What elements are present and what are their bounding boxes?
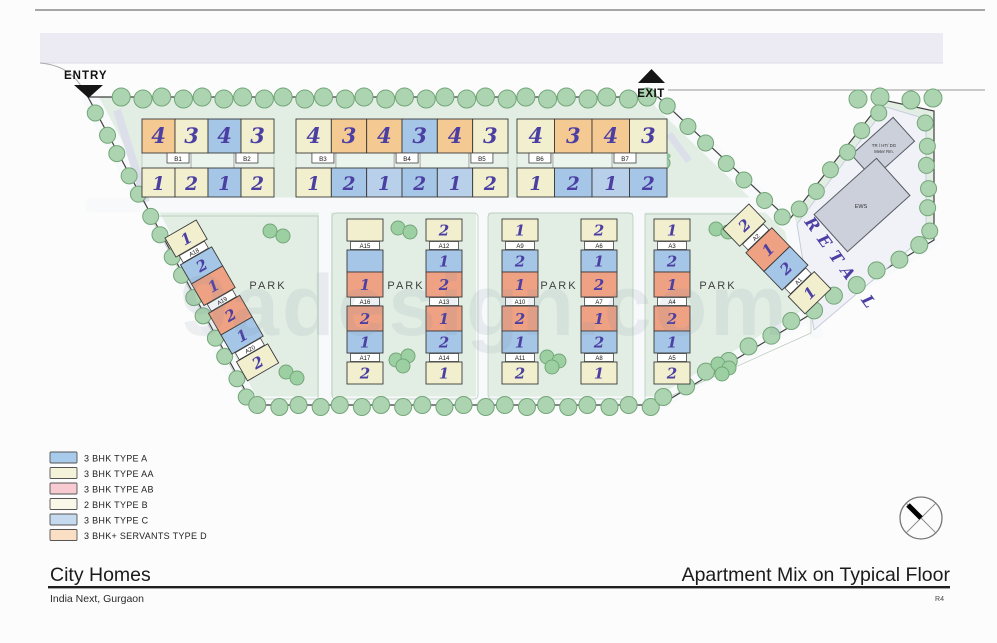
- unit-count-number: 4: [528, 123, 543, 148]
- tree-icon: [436, 399, 453, 416]
- tower-label: A11: [515, 356, 526, 362]
- tower-label: A3: [668, 244, 676, 250]
- meter-room-label-1: TR / HT/ DG: [872, 143, 897, 148]
- tower-label: A17: [360, 356, 371, 362]
- tree-icon: [276, 229, 290, 243]
- legend-swatch: [50, 452, 77, 463]
- tree-icon: [557, 88, 575, 106]
- tree-icon: [395, 399, 412, 416]
- legend-item: 3 BHK TYPE A: [50, 452, 147, 464]
- legend-swatch: [50, 499, 77, 510]
- legend-swatch: [50, 483, 77, 494]
- tree-icon: [396, 359, 410, 373]
- tree-icon: [868, 262, 885, 279]
- tree-icon: [395, 88, 413, 106]
- tree-icon: [271, 399, 288, 416]
- unit-count-number: 4: [603, 123, 618, 148]
- unit-count-number: 4: [377, 123, 392, 148]
- apartment-building-B1-B2: 43431212B1B2: [142, 119, 274, 197]
- tree-icon: [655, 389, 672, 406]
- unit-count-number: 4: [306, 123, 321, 148]
- legend-swatch: [50, 530, 77, 541]
- tree-icon: [911, 237, 928, 254]
- unit-count-number: 1: [307, 174, 320, 195]
- unit-count-number: 3: [184, 123, 199, 148]
- tree-icon: [919, 138, 935, 154]
- unit-count-number: 4: [217, 123, 232, 148]
- tree-icon: [403, 225, 417, 239]
- unit-count-number: 1: [439, 365, 449, 383]
- tree-icon: [121, 168, 137, 184]
- tree-icon: [153, 88, 171, 106]
- tree-icon: [458, 90, 476, 108]
- legend-label: 3 BHK TYPE AB: [84, 485, 154, 495]
- tree-icon: [848, 277, 865, 294]
- watermark: 9adesign.com: [180, 258, 790, 354]
- tower-label: A9: [516, 244, 524, 250]
- building-label: B1: [174, 156, 182, 163]
- tree-icon: [545, 360, 559, 374]
- tree-icon: [336, 90, 354, 108]
- apartment-building-B6-B7: 43431212B6B7: [517, 119, 667, 197]
- tree-icon: [921, 181, 937, 197]
- tree-icon: [315, 88, 333, 106]
- unit-count-number: 1: [152, 174, 165, 195]
- top-building-row: 43431212B1B2434343121212B3B4B543431212B6…: [142, 119, 667, 197]
- tree-icon: [373, 397, 390, 414]
- tree-icon: [255, 90, 273, 108]
- unit-count-number: 1: [594, 365, 604, 383]
- tree-icon: [87, 105, 103, 121]
- tree-icon: [331, 397, 348, 414]
- ews-label: EWS: [855, 204, 868, 210]
- unit-cell: [347, 219, 383, 241]
- tree-icon: [601, 399, 618, 416]
- tree-icon: [560, 399, 577, 416]
- tree-icon: [579, 90, 597, 108]
- tree-icon: [215, 90, 233, 108]
- unit-count-number: 2: [342, 174, 356, 195]
- exit-label: EXIT: [637, 88, 665, 100]
- tree-icon: [455, 397, 472, 414]
- tree-icon: [274, 88, 292, 106]
- tower-label: A5: [668, 356, 676, 362]
- unit-count-number: 2: [641, 174, 655, 195]
- tree-icon: [518, 399, 535, 416]
- tree-icon: [918, 157, 934, 173]
- tree-icon: [517, 88, 535, 106]
- tree-icon: [377, 90, 395, 108]
- unit-count-number: 2: [412, 174, 426, 195]
- legend-swatch: [50, 514, 77, 525]
- tree-icon: [174, 90, 192, 108]
- unit-count-number: 1: [529, 174, 542, 195]
- tree-icon: [680, 119, 696, 135]
- legend-label: 3 BHK TYPE C: [84, 516, 149, 526]
- tree-icon: [290, 397, 307, 414]
- tree-icon: [718, 156, 734, 172]
- tree-icon: [736, 172, 752, 188]
- tree-icon: [822, 162, 838, 178]
- tree-icon: [715, 367, 729, 381]
- tree-icon: [477, 399, 494, 416]
- project-location: India Next, Gurgaon: [50, 593, 144, 605]
- tree-icon: [808, 183, 824, 199]
- unit-count-number: 1: [604, 174, 617, 195]
- meter-room-label-2: Meter Rm.: [874, 149, 894, 154]
- legend-label: 3 BHK TYPE AA: [84, 469, 154, 479]
- unit-count-number: 3: [250, 123, 265, 148]
- tree-icon: [152, 227, 168, 243]
- site-plan-sheet: RETAIL TR / HT/ DG Meter Rm. EWS PARK PA…: [0, 0, 997, 643]
- entry-label: ENTRY: [64, 70, 108, 82]
- apartment-building-B3-B4-B5: 434343121212B3B4B5: [296, 119, 508, 197]
- tree-icon: [193, 88, 211, 106]
- tree-icon: [290, 371, 304, 385]
- legend-item: 3 BHK TYPE AB: [50, 483, 154, 495]
- unit-count-number: 1: [218, 174, 231, 195]
- tree-icon: [917, 115, 933, 131]
- unit-count-number: 1: [515, 222, 525, 240]
- tree-icon: [840, 144, 856, 160]
- tree-icon: [109, 146, 125, 162]
- tower-label: A12: [439, 244, 450, 250]
- tree-icon: [143, 208, 159, 224]
- sheet-title: Apartment Mix on Typical Floor: [682, 564, 951, 586]
- unit-count-number: 3: [483, 123, 498, 148]
- site-plan-canvas: RETAIL TR / HT/ DG Meter Rm. EWS PARK PA…: [0, 0, 997, 643]
- building-label: B2: [243, 156, 251, 163]
- unit-count-number: 3: [342, 123, 357, 148]
- tree-icon: [355, 88, 373, 106]
- tree-icon: [498, 90, 516, 108]
- revision-code: R4: [935, 596, 944, 603]
- tower-label: A15: [360, 244, 371, 250]
- unit-count-number: 3: [641, 123, 656, 148]
- tree-icon: [476, 88, 494, 106]
- unit-count-number: 2: [184, 174, 198, 195]
- tower-label: A8: [595, 356, 603, 362]
- project-title: City Homes: [50, 564, 151, 586]
- tree-icon: [353, 399, 370, 416]
- legend-label: 2 BHK TYPE B: [84, 500, 148, 510]
- tree-icon: [920, 200, 936, 216]
- tree-icon: [871, 88, 889, 106]
- tree-icon: [312, 399, 329, 416]
- tree-icon: [698, 135, 714, 151]
- unit-count-number: 3: [412, 123, 427, 148]
- building-label: B5: [478, 156, 486, 163]
- unit-count-number: 2: [483, 174, 497, 195]
- tree-icon: [849, 90, 867, 108]
- tower-label: A14: [439, 356, 450, 362]
- tree-icon: [774, 209, 790, 225]
- tree-icon: [757, 193, 773, 209]
- unit-count-number: 2: [359, 365, 370, 383]
- tree-icon: [417, 90, 435, 108]
- tree-icon: [922, 223, 938, 239]
- building-label: B3: [319, 156, 327, 163]
- tree-icon: [924, 89, 942, 107]
- tree-icon: [891, 251, 908, 268]
- title-rule: [48, 586, 950, 588]
- unit-count-number: 1: [449, 174, 462, 195]
- tree-icon: [436, 88, 454, 106]
- legend-label: 3 BHK TYPE A: [84, 454, 147, 464]
- tree-icon: [496, 397, 513, 414]
- tree-icon: [620, 90, 638, 108]
- legend-item: 2 BHK TYPE B: [50, 499, 148, 511]
- tree-icon: [620, 397, 637, 414]
- perimeter-road: [40, 33, 943, 63]
- building-label: B7: [621, 156, 629, 163]
- tree-icon: [263, 224, 277, 238]
- legend-item: 3 BHK TYPE AA: [50, 468, 154, 480]
- unit-count-number: 3: [566, 123, 581, 148]
- tree-icon: [100, 127, 116, 143]
- tree-icon: [414, 397, 431, 414]
- unit-count-number: 2: [666, 365, 677, 383]
- unit-count-number: 2: [438, 222, 449, 240]
- legend-item: 3 BHK TYPE C: [50, 514, 149, 526]
- tree-icon: [579, 397, 596, 414]
- unit-count-number: 2: [514, 365, 525, 383]
- legend-item: 3 BHK+ SERVANTS TYPE D: [50, 530, 207, 542]
- tree-icon: [902, 91, 920, 109]
- building-label: B6: [536, 156, 544, 163]
- tree-icon: [659, 98, 675, 114]
- unit-count-number: 1: [378, 174, 391, 195]
- tree-icon: [538, 397, 555, 414]
- building-label: B4: [403, 156, 411, 163]
- unit-count-number: 4: [448, 123, 463, 148]
- unit-count-number: 2: [593, 222, 604, 240]
- legend-swatch: [50, 468, 77, 479]
- unit-count-number: 4: [151, 123, 166, 148]
- tree-icon: [791, 201, 807, 217]
- legend-label: 3 BHK+ SERVANTS TYPE D: [84, 531, 207, 541]
- unit-count-number: 1: [667, 222, 677, 240]
- tree-icon: [296, 90, 314, 108]
- unit-count-number: 2: [250, 174, 264, 195]
- unit-count-number: 2: [566, 174, 580, 195]
- tree-icon: [598, 88, 616, 106]
- tree-icon: [234, 88, 252, 106]
- tree-icon: [854, 123, 870, 139]
- tree-icon: [249, 397, 266, 414]
- tree-icon: [539, 90, 557, 108]
- tower-label: A6: [595, 244, 603, 250]
- tree-icon: [134, 90, 152, 108]
- tree-icon: [871, 105, 887, 121]
- tree-icon: [112, 88, 130, 106]
